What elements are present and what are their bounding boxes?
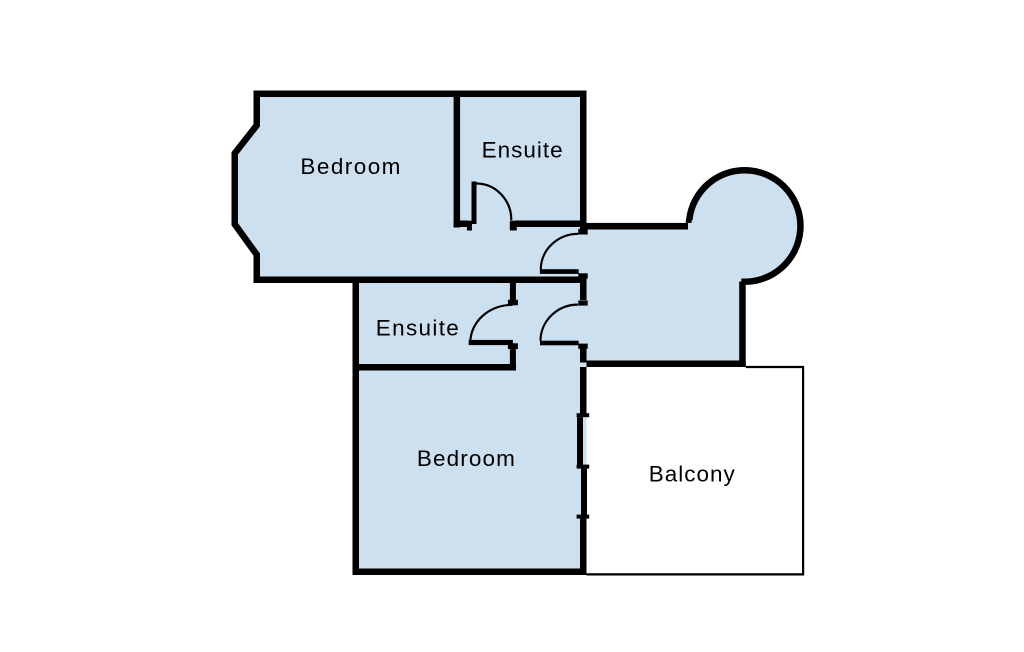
svg-text:Bedroom: Bedroom [300, 154, 400, 179]
svg-text:Ensuite: Ensuite [482, 138, 563, 163]
svg-text:Bedroom: Bedroom [417, 446, 515, 471]
svg-text:Balcony: Balcony [649, 462, 736, 487]
